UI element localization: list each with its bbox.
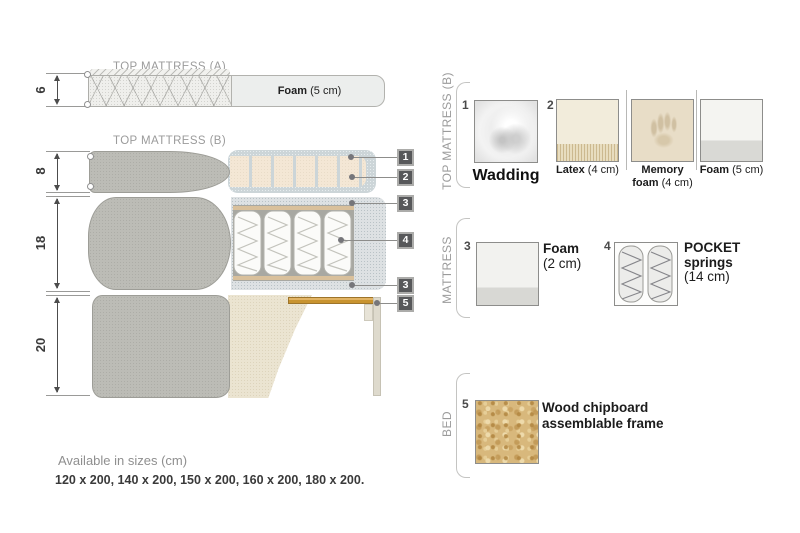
legend-item-1-number: 1 [462, 98, 469, 112]
dim-8-arrow-up-icon [54, 153, 60, 159]
corner-ring-icon [84, 71, 91, 78]
foam-5cm-label: Foam (5 cm) [690, 164, 773, 177]
dim-8-label: 8 [34, 156, 48, 186]
latex-swatch [556, 99, 619, 162]
legend-divider [626, 90, 627, 170]
pocket-springs-swatch [614, 242, 678, 306]
bed-frame-leg [373, 297, 381, 396]
dim-6-arrow-down-icon [54, 99, 60, 105]
callout-badge-3b: 3 [397, 277, 414, 294]
legend-divider [696, 90, 697, 170]
dim-6-label: 6 [34, 75, 48, 105]
mattress-cover [88, 197, 231, 290]
legend-section-mattress: MATTRESS [440, 210, 454, 330]
foam-2cm-swatch [476, 242, 539, 306]
dim-18-label: 18 [34, 228, 48, 258]
callout-line-3b [352, 285, 397, 286]
memory-foam-swatch [631, 99, 694, 162]
mattress-construction-infographic: TOP MATTRESS (A) 6 Foam (5 cm) TOP MATTR… [0, 0, 800, 533]
callout-dot-3b [349, 282, 355, 288]
dim-18-top-tick [46, 196, 90, 197]
legend-bracket-mattress [456, 218, 470, 318]
topper-foam-label: Foam (5 cm) [237, 85, 382, 97]
corner-ring-icon [87, 153, 94, 160]
frame-bracket [364, 304, 373, 321]
callout-line-1 [351, 157, 397, 158]
legend-bracket-bed [456, 373, 470, 478]
dim-18-arrow-down-icon [54, 283, 60, 289]
bed-fabric-drape [228, 295, 312, 398]
pocket-springs-label: POCKETsprings(14 cm) [684, 241, 764, 285]
legend-item-4-number: 4 [604, 239, 611, 253]
callout-line-3 [352, 203, 397, 204]
dim-20-arrow-up-icon [54, 297, 60, 303]
available-sizes-title: Available in sizes (cm) [58, 453, 187, 468]
dim-20-arrow-down-icon [54, 387, 60, 393]
quilted-topper-section [88, 75, 232, 107]
pocket-springs-swatch-graphic [615, 243, 677, 305]
dim-8-bottom-tick [46, 192, 90, 193]
dim-20-line [57, 298, 58, 392]
pocket-springs-section [233, 205, 354, 281]
callout-line-4 [341, 240, 397, 241]
callout-dot-2 [349, 174, 355, 180]
dim-20-label: 20 [34, 330, 48, 360]
topper-b-cover [89, 151, 230, 193]
wadding-label: Wadding [466, 167, 546, 185]
legend-section-bed: BED [440, 364, 454, 484]
dim-8-arrow-down-icon [54, 185, 60, 191]
foam-2cm-label: Foam(2 cm) [543, 241, 603, 271]
callout-line-2 [352, 177, 397, 178]
callout-badge-2: 2 [397, 169, 414, 186]
corner-ring-icon [87, 183, 94, 190]
callout-dot-4 [338, 237, 344, 243]
pocket-springs-graphic [233, 205, 354, 281]
foam-5cm-swatch [700, 99, 763, 162]
legend-item-3-number: 3 [464, 239, 471, 253]
dim-18-bottom-tick [46, 291, 90, 292]
callout-badge-5: 5 [397, 295, 414, 312]
callout-badge-1: 1 [397, 149, 414, 166]
top-mattress-b-title: TOP MATTRESS (B) [113, 135, 226, 147]
latex-label: Latex (4 cm) [546, 164, 629, 177]
dim-8-top-tick [46, 151, 90, 152]
corner-ring-icon [84, 101, 91, 108]
latex-blocks-layer [230, 156, 366, 187]
legend-item-2-number: 2 [547, 98, 554, 112]
callout-dot-5 [374, 300, 380, 306]
callout-line-5 [377, 303, 397, 304]
dim-6-bottom-tick [46, 106, 90, 107]
wood-slat [288, 297, 374, 304]
wood-chipboard-swatch [475, 400, 539, 464]
legend-item-5-number: 5 [462, 397, 469, 411]
callout-badge-4: 4 [397, 232, 414, 249]
dim-18-arrow-up-icon [54, 198, 60, 204]
wood-chipboard-label: Wood chipboardassemblable frame [542, 400, 692, 432]
dim-6-arrow-up-icon [54, 75, 60, 81]
callout-badge-3: 3 [397, 195, 414, 212]
dim-18-line [57, 199, 58, 288]
callout-dot-3 [349, 200, 355, 206]
wadding-swatch [474, 100, 538, 163]
bed-base-cover [92, 295, 230, 398]
callout-dot-1 [348, 154, 354, 160]
latex-fringe-texture [557, 144, 618, 161]
dim-20-bottom-tick [46, 395, 90, 396]
dim-20-top-tick [46, 295, 90, 296]
legend-section-top-mattress-b: TOP MATTRESS (B) [440, 71, 454, 191]
available-sizes-list: 120 x 200, 140 x 200, 150 x 200, 160 x 2… [55, 473, 364, 487]
